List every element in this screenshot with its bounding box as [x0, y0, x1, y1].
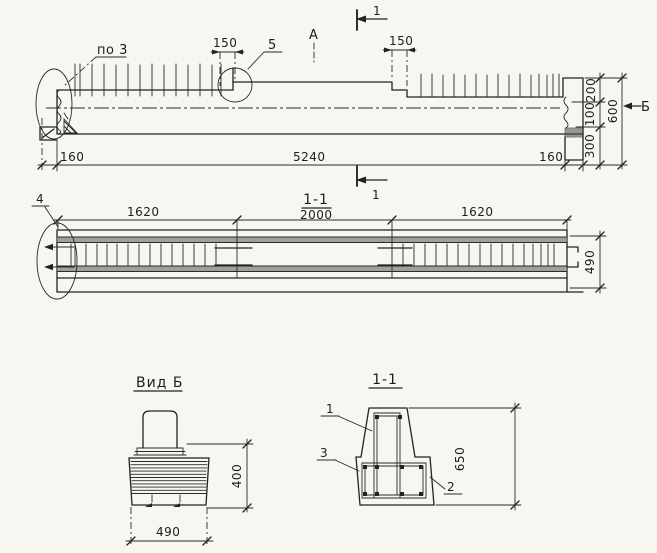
drawing-sheet: 5 по 3 А 1 1 150 [0, 0, 657, 553]
cross-section-title: 1-1 [372, 372, 398, 388]
dowel-ticks-left [75, 64, 221, 96]
dim-right-stack: 200 100 300 600 [572, 73, 627, 169]
bar-2-label: 2 [447, 480, 455, 494]
dim-400: 400 [187, 439, 253, 512]
right-ledge-sides [565, 137, 583, 160]
elevation-view: 5 по 3 А 1 1 150 [36, 4, 650, 202]
stirrups-right-zone [403, 244, 554, 266]
bar-1-label: 1 [326, 402, 334, 416]
bottom-reinf-band [57, 266, 567, 272]
dim-490-viewb-label: 490 [156, 525, 180, 539]
dim-490-viewb: 490 [126, 507, 213, 547]
cross-section-outline [356, 408, 434, 505]
view-b-hatch [131, 462, 207, 494]
section-mark-top: 1 [356, 4, 387, 30]
dim-150-right: 150 [383, 34, 416, 86]
long-section-view: 1-1 1620 2000 1620 4 [32, 192, 606, 299]
beam-top-edges [57, 78, 583, 160]
stirrups-left-zone [71, 244, 216, 266]
left-ledge [40, 127, 57, 140]
section-mark-bottom-label: 1 [372, 188, 380, 202]
dim-600: 600 [606, 99, 620, 123]
view-b-arrow-label: Б [641, 100, 650, 115]
po3-label: по 3 [97, 43, 128, 58]
dim-400-label: 400 [230, 464, 244, 488]
detail-4-label: 4 [36, 192, 44, 206]
dim-chain-long-section: 1620 2000 1620 [54, 205, 571, 229]
long-section-title: 1-1 [303, 192, 329, 208]
drawing-canvas: 5 по 3 А 1 1 150 [0, 0, 657, 553]
view-b-title: Вид Б [136, 375, 183, 391]
section-mark-top-label: 1 [373, 4, 381, 18]
dim-bottom-chain: 160 5240 160 [38, 118, 587, 171]
bar-1-leader [321, 416, 372, 431]
rebar-points [363, 415, 423, 496]
dim-5240: 5240 [293, 150, 326, 164]
dim-490-long: 490 [570, 231, 606, 293]
dim-2000: 2000 [300, 208, 333, 222]
dim-160-left: 160 [60, 150, 84, 164]
dim-650-label: 650 [453, 447, 467, 471]
dim-150-left: 150 [211, 36, 244, 86]
svg-text:150: 150 [213, 36, 237, 50]
view-arrow-b: Б [623, 100, 650, 115]
dim-1620-right: 1620 [461, 205, 494, 219]
bearing-collar [134, 448, 186, 455]
section-mark-bottom: 1 [356, 166, 387, 202]
splice-bars [215, 248, 412, 265]
cross-section-view: 1-1 1 3 2 650 [317, 372, 521, 510]
column-stub [143, 411, 177, 448]
bar-3-label: 3 [320, 446, 328, 460]
bar-3-leader [317, 460, 359, 471]
top-reinf-band [57, 237, 567, 243]
bar-2-leader [430, 477, 462, 494]
detail-5-underline-leader [248, 52, 282, 69]
dim-490-long-label: 490 [583, 250, 597, 274]
right-ledge [565, 128, 583, 137]
dim-300: 300 [583, 134, 597, 158]
flange-stirrup [362, 463, 426, 498]
dim-200: 200 [584, 78, 598, 102]
break-line-left [57, 90, 61, 134]
dim-100: 100 [583, 102, 597, 126]
web-stirrup [374, 413, 400, 498]
dowel-ticks-right [421, 74, 559, 97]
svg-text:150: 150 [389, 34, 413, 48]
mark-a-label: А [309, 28, 318, 43]
view-b: Вид Б 400 490 [126, 375, 253, 547]
detail-5-label: 5 [268, 38, 277, 53]
dim-1620-left: 1620 [127, 205, 160, 219]
right-end-bars [567, 247, 578, 267]
break-line-right [564, 97, 568, 128]
dim-160-right: 160 [539, 150, 563, 164]
